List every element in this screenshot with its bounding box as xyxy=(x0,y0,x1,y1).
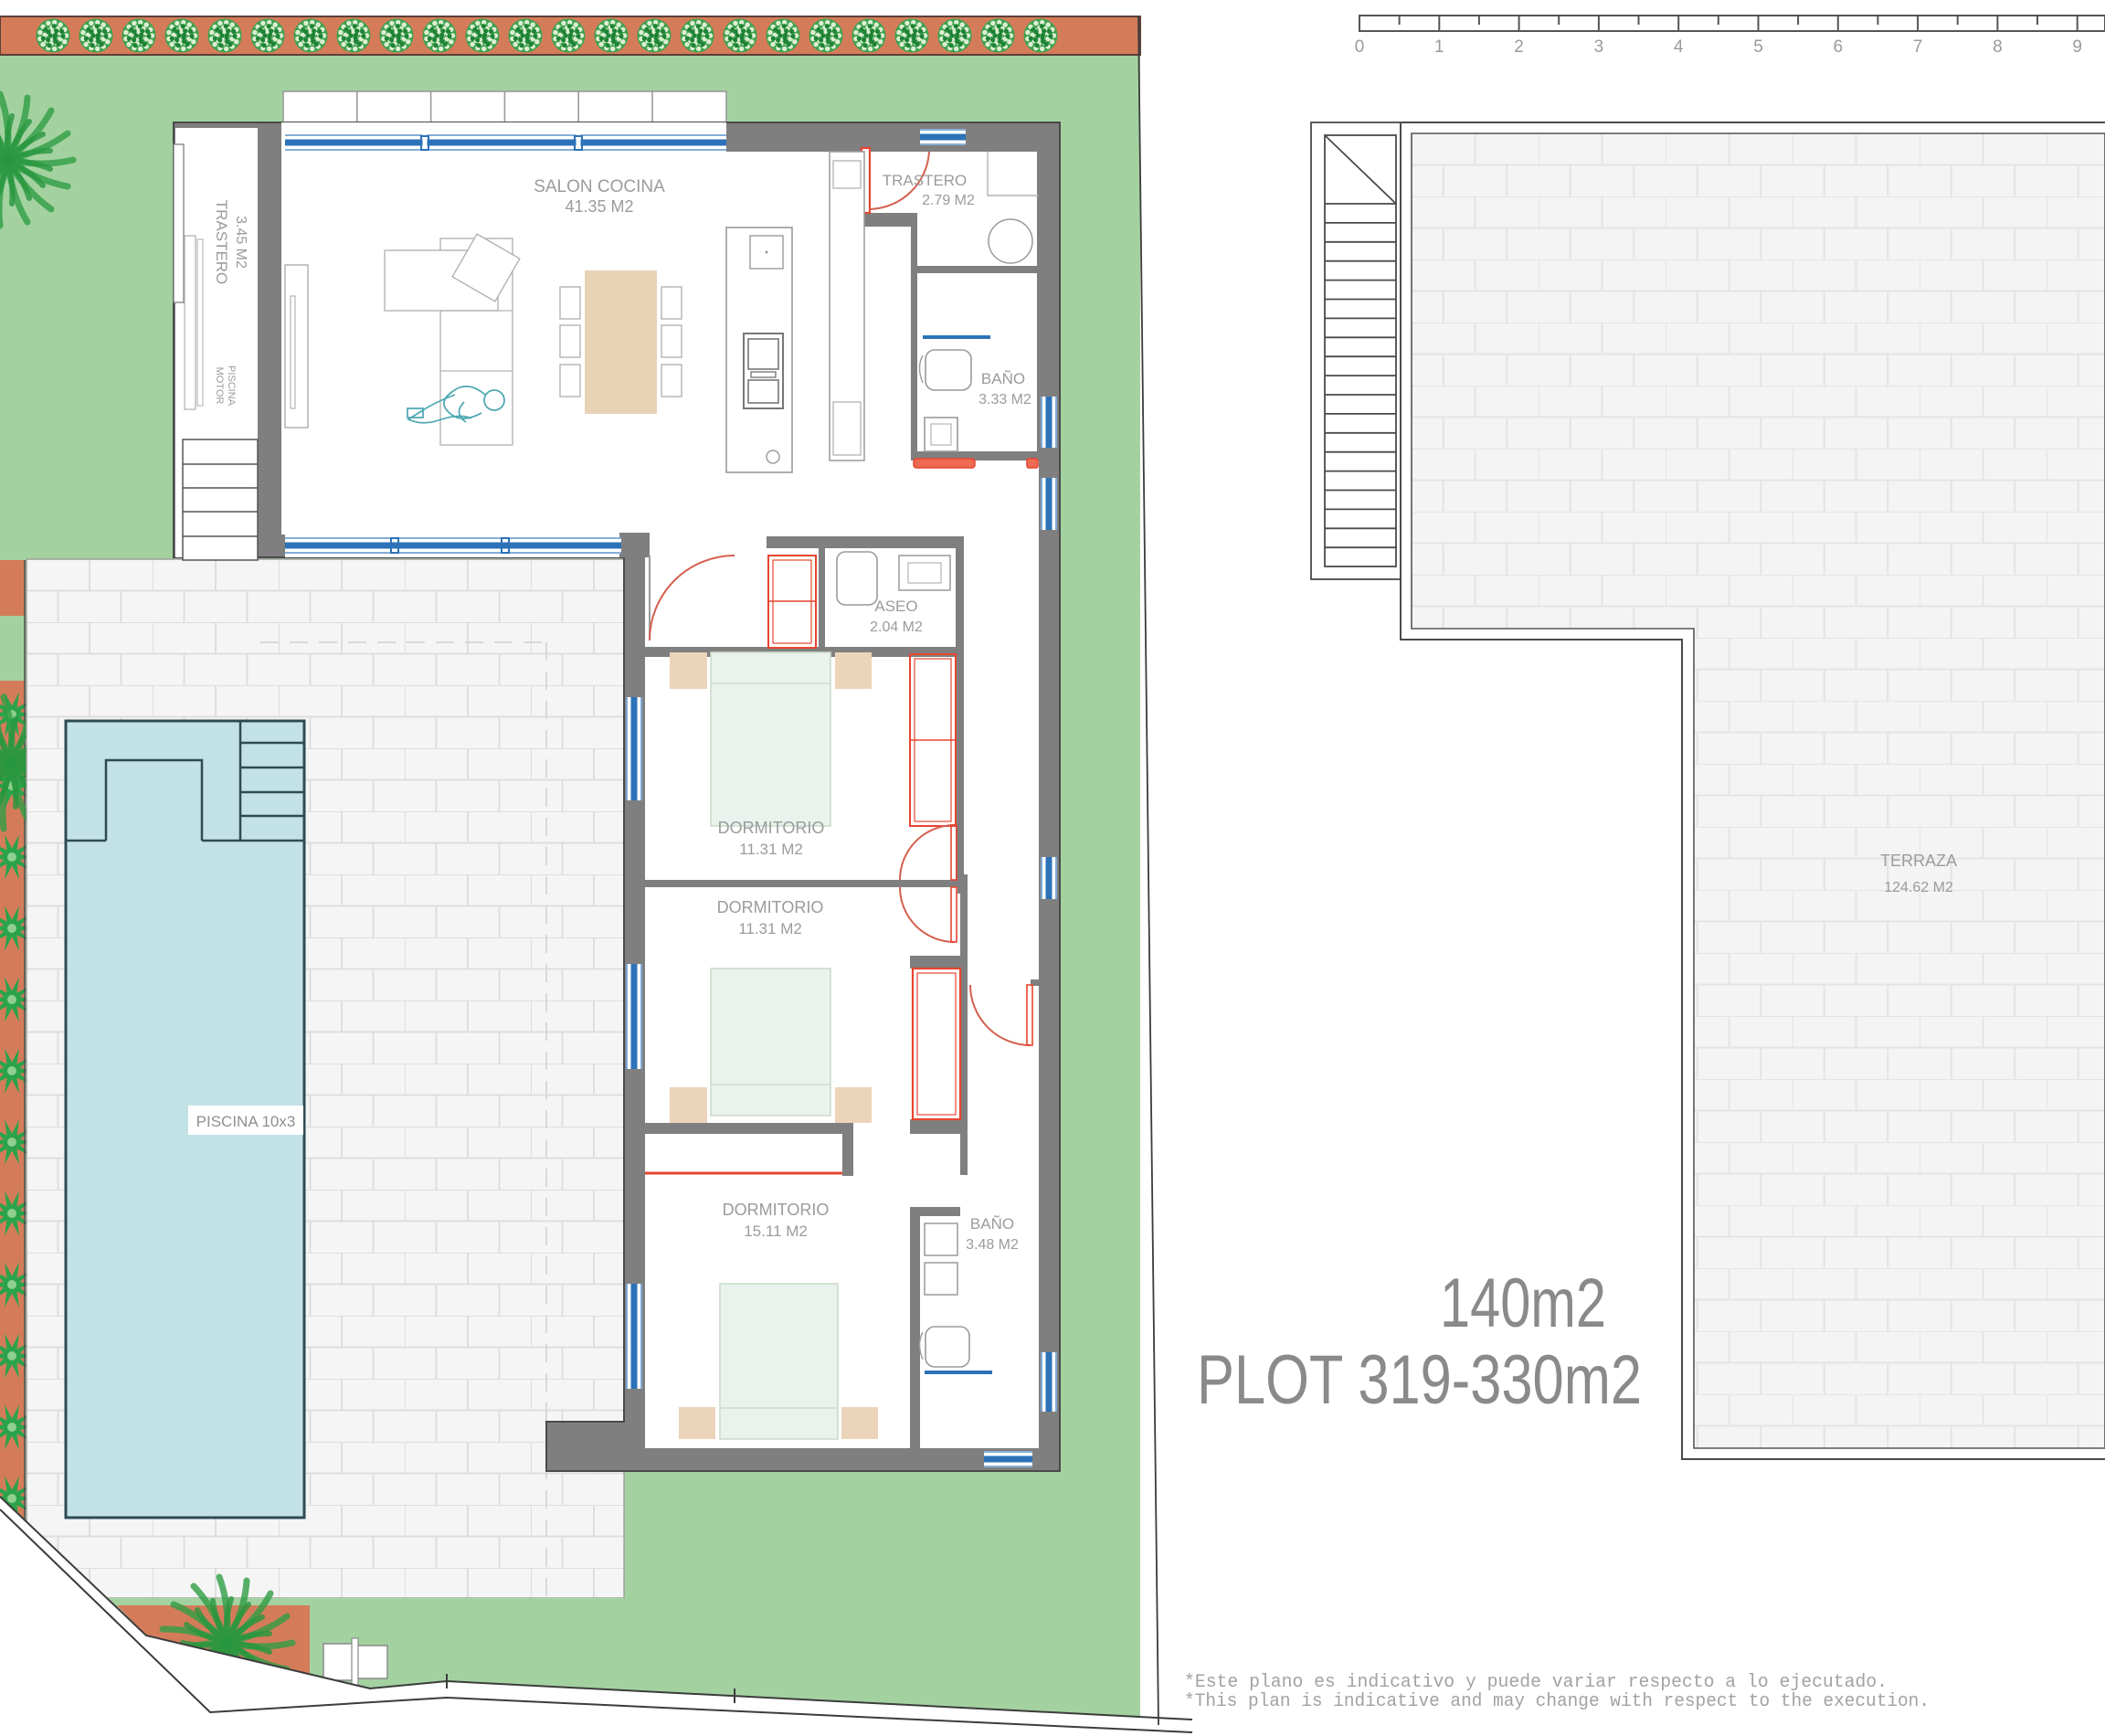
svg-text:TRASTERO: TRASTERO xyxy=(213,200,230,285)
svg-text:11.31 M2: 11.31 M2 xyxy=(738,920,802,937)
svg-text:BAÑO: BAÑO xyxy=(970,1215,1014,1233)
svg-text:8: 8 xyxy=(1993,37,2003,57)
svg-text:7: 7 xyxy=(1913,37,1923,57)
svg-text:DORMITORIO: DORMITORIO xyxy=(723,1201,830,1219)
svg-text:41.35 M2: 41.35 M2 xyxy=(565,197,633,216)
svg-text:11.31 M2: 11.31 M2 xyxy=(739,841,803,858)
svg-text:5: 5 xyxy=(1753,37,1763,57)
svg-text:SALON COCINA: SALON COCINA xyxy=(534,177,665,196)
svg-text:2: 2 xyxy=(1514,37,1524,57)
svg-text:BAÑO: BAÑO xyxy=(981,370,1025,387)
svg-text:3: 3 xyxy=(1594,37,1604,57)
svg-text:*This plan is indicative and m: *This plan is indicative and may change … xyxy=(1184,1691,1930,1712)
svg-text:DORMITORIO: DORMITORIO xyxy=(718,819,825,837)
svg-text:6: 6 xyxy=(1834,37,1844,57)
svg-text:3.48 M2: 3.48 M2 xyxy=(966,1237,1019,1253)
svg-text:9: 9 xyxy=(2072,37,2082,57)
svg-text:3.33 M2: 3.33 M2 xyxy=(978,392,1031,408)
svg-text:1: 1 xyxy=(1434,37,1444,57)
svg-text:140m2: 140m2 xyxy=(1440,1265,1606,1342)
svg-text:ASEO: ASEO xyxy=(874,598,917,615)
svg-text:PISCINA 10x3: PISCINA 10x3 xyxy=(196,1113,296,1130)
svg-text:PISCINA: PISCINA xyxy=(226,365,237,407)
svg-text:MOTOR: MOTOR xyxy=(214,367,225,405)
svg-text:TRASTERO: TRASTERO xyxy=(883,172,968,189)
svg-text:DORMITORIO: DORMITORIO xyxy=(717,898,824,916)
svg-text:2.79 M2: 2.79 M2 xyxy=(922,193,975,208)
svg-text:124.62 M2: 124.62 M2 xyxy=(1884,880,1953,895)
svg-text:*Este plano es indicativo y pu: *Este plano es indicativo y puede variar… xyxy=(1184,1672,1888,1693)
svg-text:PLOT 319-330m2: PLOT 319-330m2 xyxy=(1197,1341,1642,1419)
svg-text:3.45 M2: 3.45 M2 xyxy=(233,216,249,269)
svg-text:0: 0 xyxy=(1355,37,1365,57)
svg-text:2.04 M2: 2.04 M2 xyxy=(870,619,923,635)
svg-text:TERRAZA: TERRAZA xyxy=(1880,852,1957,870)
svg-text:15.11 M2: 15.11 M2 xyxy=(744,1223,808,1240)
svg-text:4: 4 xyxy=(1674,37,1684,57)
